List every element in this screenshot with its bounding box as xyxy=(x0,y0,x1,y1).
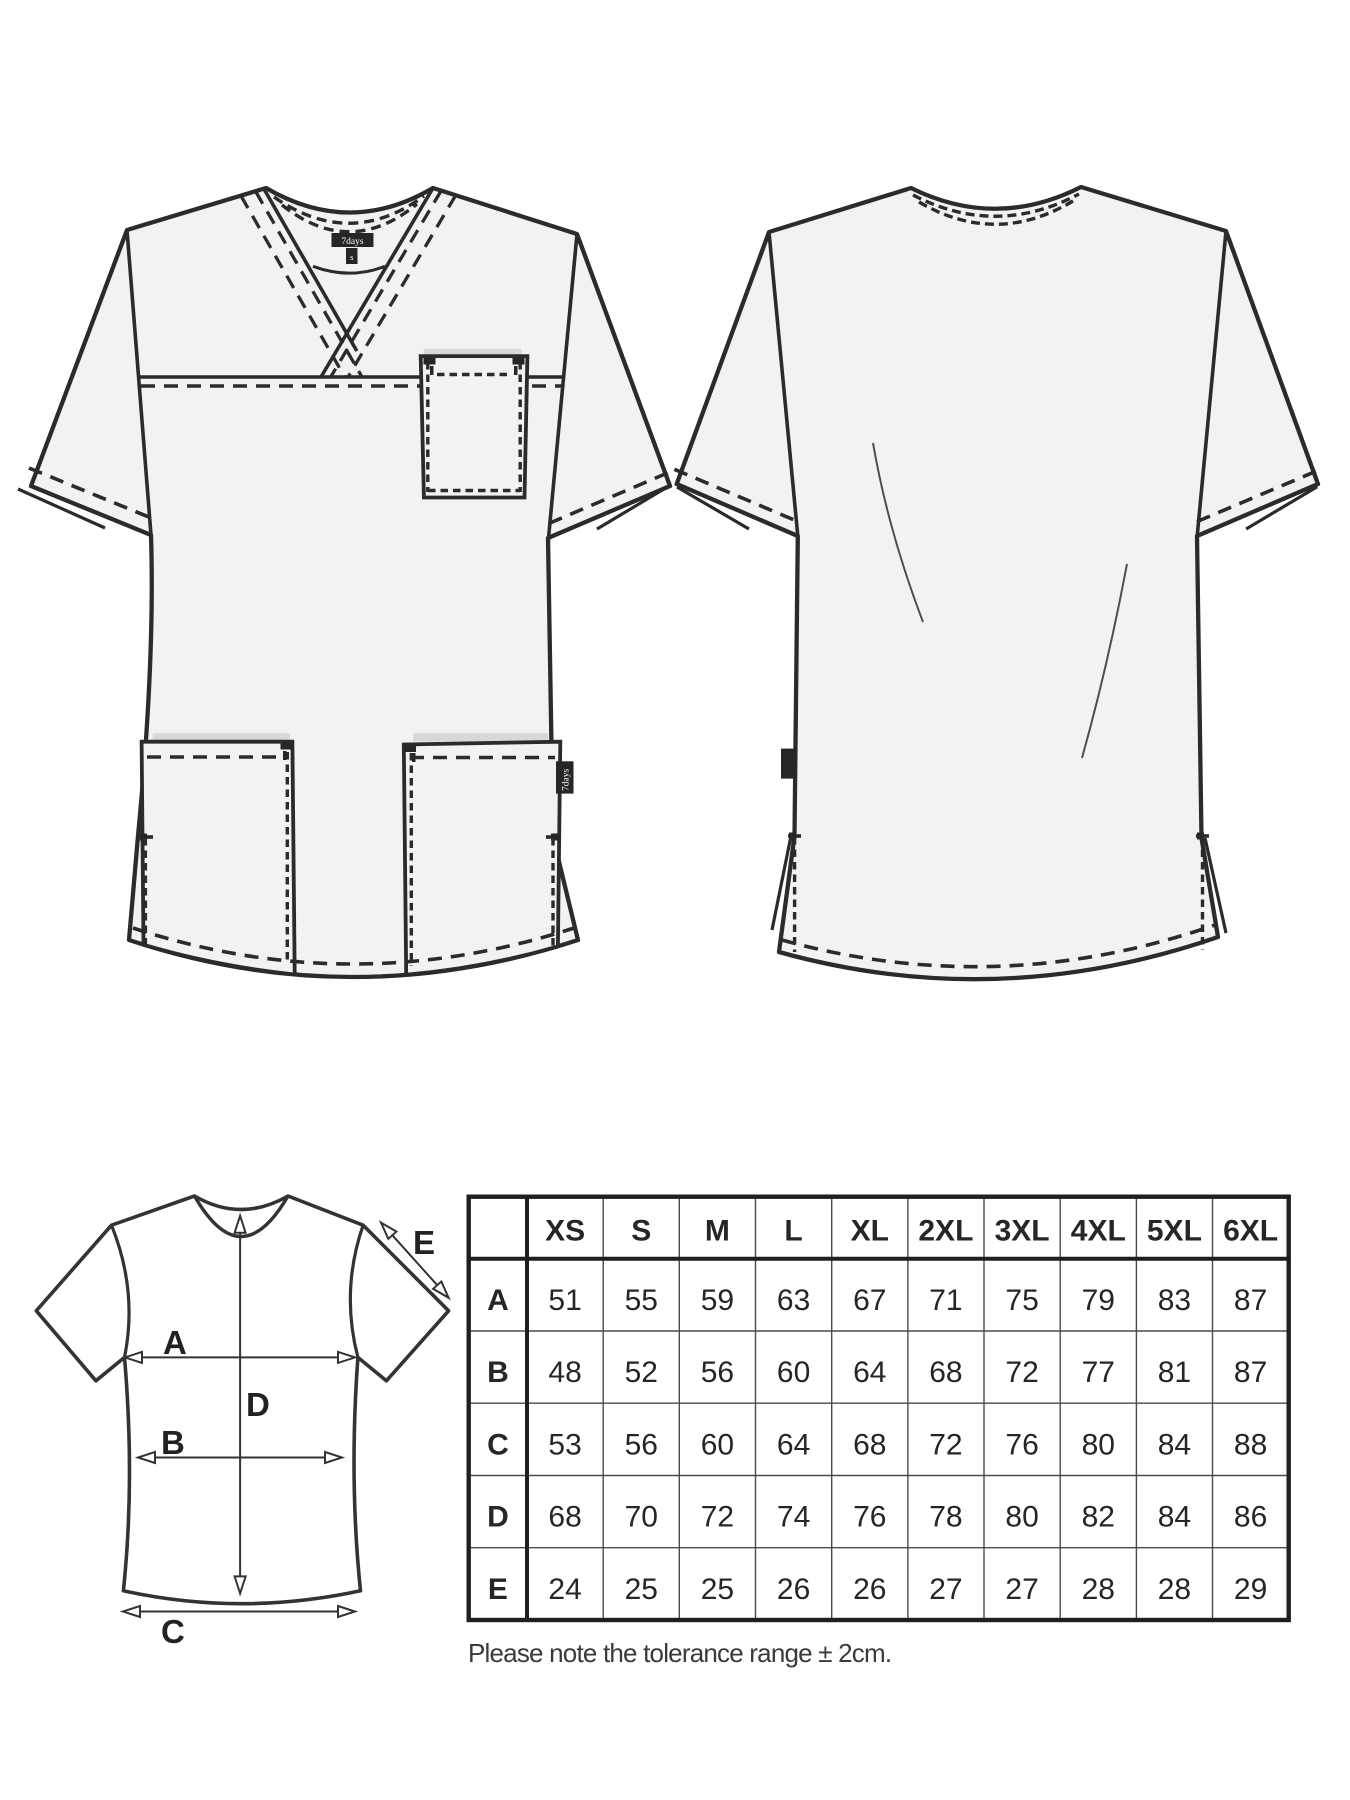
svg-text:7days: 7days xyxy=(562,769,572,791)
svg-text:84: 84 xyxy=(1158,1428,1191,1461)
svg-text:D: D xyxy=(487,1501,509,1534)
svg-text:87: 87 xyxy=(1234,1284,1267,1317)
svg-text:C: C xyxy=(161,1613,185,1650)
svg-text:82: 82 xyxy=(1082,1501,1115,1534)
svg-text:s: s xyxy=(350,252,353,262)
svg-text:XS: XS xyxy=(545,1215,585,1248)
svg-text:B: B xyxy=(487,1356,509,1389)
svg-text:D: D xyxy=(246,1386,270,1423)
svg-text:6XL: 6XL xyxy=(1223,1215,1278,1248)
svg-text:55: 55 xyxy=(625,1284,658,1317)
svg-text:70: 70 xyxy=(625,1501,658,1534)
svg-text:51: 51 xyxy=(548,1284,581,1317)
svg-text:86: 86 xyxy=(1234,1501,1267,1534)
svg-text:81: 81 xyxy=(1158,1356,1191,1389)
svg-text:L: L xyxy=(784,1215,802,1248)
svg-text:68: 68 xyxy=(929,1356,962,1389)
svg-text:68: 68 xyxy=(853,1428,886,1461)
svg-text:56: 56 xyxy=(701,1356,734,1389)
svg-text:56: 56 xyxy=(625,1428,658,1461)
svg-text:3XL: 3XL xyxy=(995,1215,1050,1248)
svg-text:E: E xyxy=(413,1224,435,1261)
svg-text:52: 52 xyxy=(625,1356,658,1389)
svg-text:25: 25 xyxy=(701,1573,734,1606)
svg-text:59: 59 xyxy=(701,1284,734,1317)
svg-text:80: 80 xyxy=(1082,1428,1115,1461)
svg-text:76: 76 xyxy=(1005,1428,1038,1461)
svg-text:M: M xyxy=(705,1215,730,1248)
svg-text:63: 63 xyxy=(777,1284,810,1317)
svg-text:A: A xyxy=(487,1284,509,1317)
svg-text:84: 84 xyxy=(1158,1501,1191,1534)
svg-text:A: A xyxy=(163,1324,187,1361)
svg-text:4XL: 4XL xyxy=(1071,1215,1126,1248)
svg-text:27: 27 xyxy=(1005,1573,1038,1606)
svg-text:60: 60 xyxy=(777,1356,810,1389)
svg-text:87: 87 xyxy=(1234,1356,1267,1389)
svg-text:29: 29 xyxy=(1234,1573,1267,1606)
svg-text:5XL: 5XL xyxy=(1147,1215,1202,1248)
svg-text:C: C xyxy=(487,1428,509,1461)
svg-text:67: 67 xyxy=(853,1284,886,1317)
svg-text:68: 68 xyxy=(548,1501,581,1534)
svg-text:7days: 7days xyxy=(341,237,363,247)
svg-text:24: 24 xyxy=(548,1573,581,1606)
svg-text:72: 72 xyxy=(1005,1356,1038,1389)
svg-text:74: 74 xyxy=(777,1501,810,1534)
svg-text:72: 72 xyxy=(929,1428,962,1461)
svg-text:75: 75 xyxy=(1005,1284,1038,1317)
svg-text:83: 83 xyxy=(1158,1284,1191,1317)
svg-text:B: B xyxy=(161,1424,185,1461)
svg-text:26: 26 xyxy=(777,1573,810,1606)
svg-text:76: 76 xyxy=(853,1501,886,1534)
svg-text:25: 25 xyxy=(625,1573,658,1606)
svg-text:88: 88 xyxy=(1234,1428,1267,1461)
svg-text:53: 53 xyxy=(548,1428,581,1461)
svg-text:77: 77 xyxy=(1082,1356,1115,1389)
svg-text:26: 26 xyxy=(853,1573,886,1606)
svg-text:60: 60 xyxy=(701,1428,734,1461)
svg-text:28: 28 xyxy=(1158,1573,1191,1606)
svg-text:27: 27 xyxy=(929,1573,962,1606)
svg-text:48: 48 xyxy=(548,1356,581,1389)
svg-text:78: 78 xyxy=(929,1501,962,1534)
svg-text:64: 64 xyxy=(853,1356,886,1389)
svg-text:2XL: 2XL xyxy=(918,1215,973,1248)
svg-text:S: S xyxy=(631,1215,651,1248)
svg-text:79: 79 xyxy=(1082,1284,1115,1317)
svg-text:71: 71 xyxy=(929,1284,962,1317)
svg-text:28: 28 xyxy=(1082,1573,1115,1606)
svg-text:80: 80 xyxy=(1005,1501,1038,1534)
svg-text:72: 72 xyxy=(701,1501,734,1534)
svg-text:XL: XL xyxy=(851,1215,889,1248)
svg-text:Please note the tolerance rang: Please note the tolerance range ± 2cm. xyxy=(468,1638,891,1668)
svg-text:E: E xyxy=(488,1573,508,1606)
svg-text:64: 64 xyxy=(777,1428,810,1461)
